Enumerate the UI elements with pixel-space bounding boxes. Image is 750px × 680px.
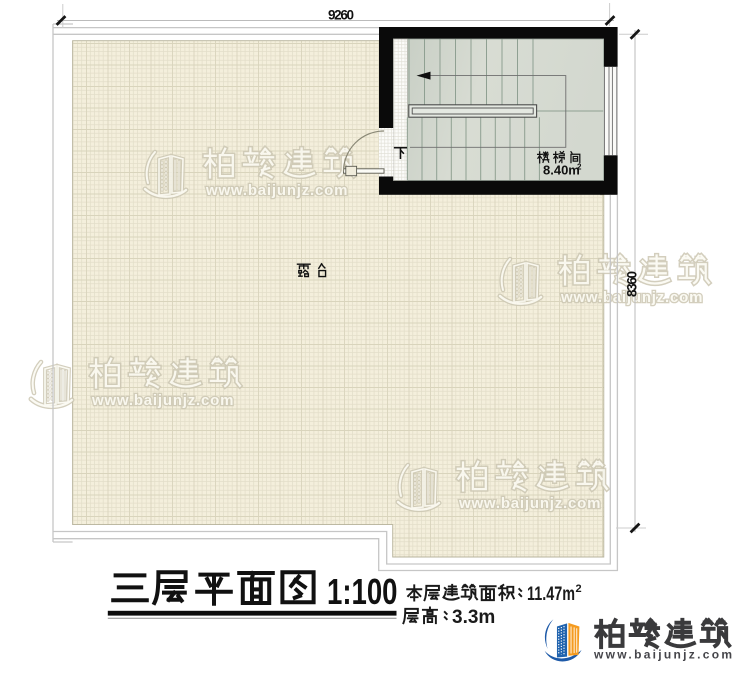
svg-text:3.3m: 3.3m	[452, 607, 495, 628]
svg-text:8360: 8360	[625, 271, 640, 297]
svg-text:2: 2	[576, 583, 582, 595]
svg-text:9260: 9260	[328, 8, 354, 23]
svg-text:2: 2	[577, 163, 582, 172]
svg-text:1:100: 1:100	[327, 571, 398, 612]
svg-text:11.47m: 11.47m	[527, 584, 575, 605]
svg-text:8.40m: 8.40m	[543, 163, 580, 178]
